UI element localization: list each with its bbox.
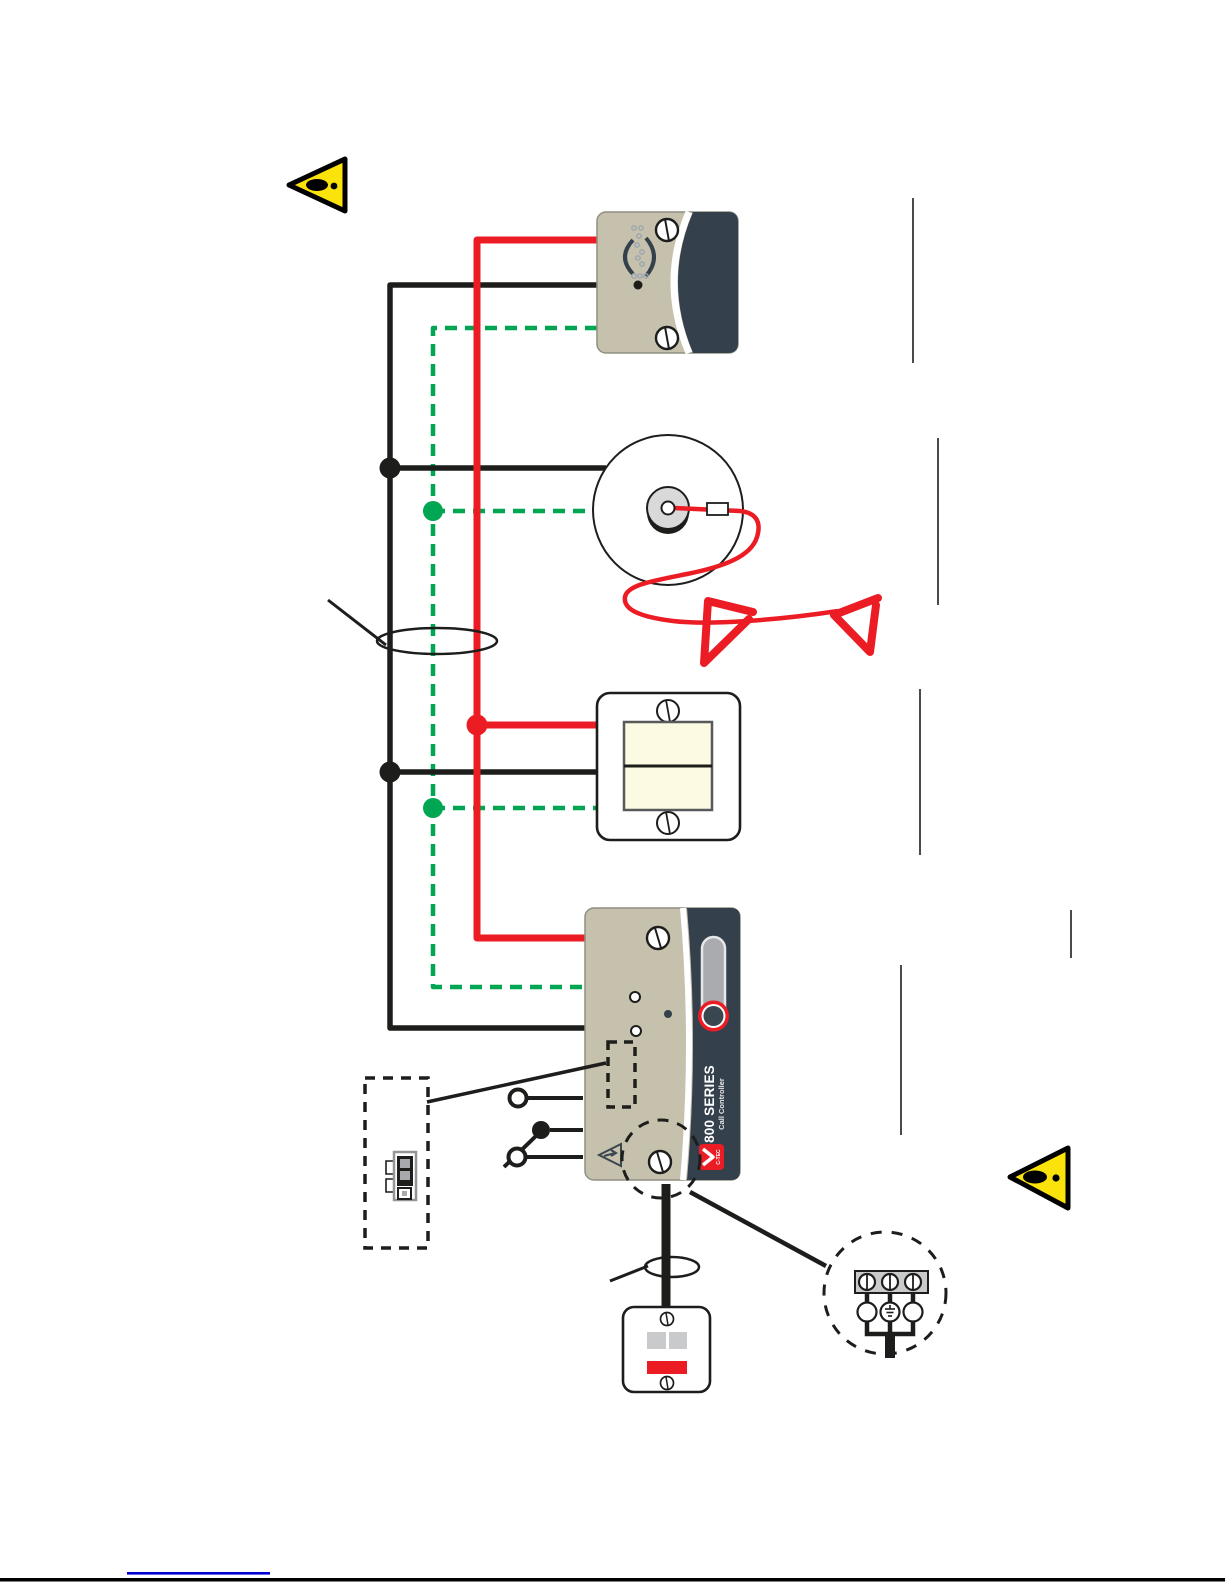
connector-detail-box (365, 1078, 428, 1248)
green-bus-path (433, 328, 597, 987)
terminal-detail-leader (690, 1192, 826, 1266)
label-rules (901, 198, 1071, 1135)
page-bottom-rule (0, 1578, 1225, 1582)
screw-bottom (661, 1377, 674, 1390)
sounder-navy-panel (678, 212, 738, 353)
black-bus-wire (390, 285, 606, 1028)
cable-marker-2-leader (610, 1266, 648, 1281)
screw-top (647, 927, 669, 949)
footer-link-underline (127, 1572, 270, 1575)
red-bus-path (477, 240, 597, 938)
manual-page: 800 SERIES Call Controller C-TEC (0, 0, 1225, 1585)
cord-hole (662, 502, 675, 515)
sounder-unit (597, 212, 738, 353)
screw-bottom (656, 327, 678, 349)
screw-top (661, 1313, 674, 1326)
reset-switch-plate (597, 693, 740, 840)
ceiling-pull-cord-unit (593, 435, 878, 663)
pull-handle-2 (834, 598, 878, 652)
indicator-led-2 (631, 1026, 641, 1036)
screw-bottom (657, 812, 679, 834)
model-label: Call Controller (717, 1078, 726, 1130)
controller-reset-button (698, 1001, 729, 1032)
switch-red-bar (647, 1361, 687, 1374)
neutral-terminal (904, 1303, 923, 1322)
red-bus-wire (477, 240, 597, 938)
cable-marker-1 (328, 600, 497, 654)
brand-text: C-TEC (716, 1149, 722, 1165)
wiring-diagram: 800 SERIES Call Controller C-TEC (0, 0, 1225, 1585)
black-junction-dot-1 (380, 458, 401, 479)
cable-marker-2 (610, 1257, 699, 1281)
relay-contact-symbol (504, 1090, 583, 1168)
screw-top (657, 700, 679, 722)
cable-marker-2-ellipse (645, 1257, 699, 1277)
green-junction-dot-1 (423, 501, 443, 521)
warning-triangle-bottom-icon (1010, 1148, 1068, 1208)
series-label: 800 SERIES (702, 1065, 717, 1143)
black-bus-path (390, 285, 597, 1028)
brand-logo: C-TEC (699, 1144, 724, 1170)
exclamation-dot (331, 183, 338, 190)
indicator-led-1 (630, 992, 640, 1002)
green-bus-wire (433, 328, 597, 987)
cord-joiner (707, 503, 728, 515)
screw-top (656, 219, 678, 241)
switch-key-1 (647, 1332, 666, 1349)
black-junction-dot-2 (380, 762, 401, 783)
pull-handle-1 (704, 601, 753, 663)
green-junction-dot-2 (423, 798, 443, 818)
connector-icon (386, 1152, 416, 1200)
warning-triangle-top-icon (289, 159, 345, 211)
mains-terminal-detail (824, 1232, 946, 1358)
exclamation-bar (306, 179, 328, 191)
red-junction-dot-1 (467, 715, 488, 736)
pull-cord-handles (704, 598, 878, 663)
call-controller: 800 SERIES Call Controller C-TEC (585, 908, 740, 1198)
screw-bottom (649, 1151, 671, 1173)
switch-key-2 (669, 1332, 687, 1349)
live-terminal (858, 1303, 877, 1322)
mains-switch-unit (623, 1307, 710, 1392)
terminal-screws (859, 1274, 921, 1290)
exclamation-bar (1023, 1171, 1047, 1184)
earth-terminal (881, 1303, 900, 1322)
exclamation-dot (1052, 1174, 1059, 1181)
microphone-dot (664, 1010, 672, 1018)
